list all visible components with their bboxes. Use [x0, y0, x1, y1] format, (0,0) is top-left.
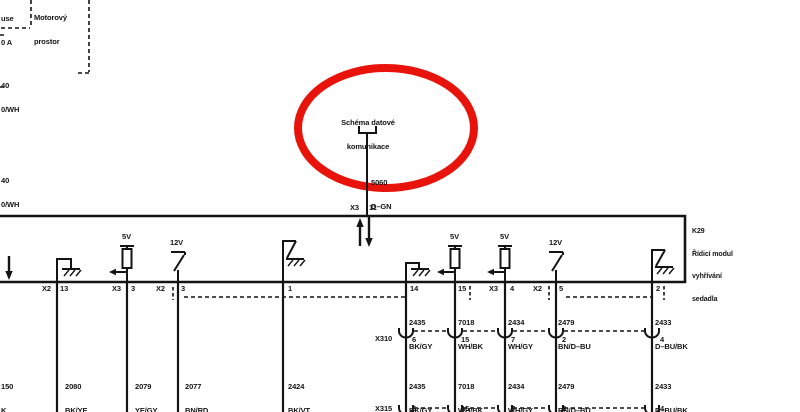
- switch-ground-symbol: [652, 250, 674, 282]
- connector-pin: 4: [660, 405, 664, 412]
- switch-symbol: [549, 252, 563, 282]
- dashed-harness-lines: [173, 286, 664, 300]
- pin-number: 1: [288, 285, 292, 293]
- connector-pin: 2: [562, 405, 566, 412]
- pin-number: 5: [559, 285, 563, 293]
- connector-x310-label: X310: [375, 335, 392, 343]
- pin-connector: X3: [489, 285, 498, 293]
- connector-x315-label: X315: [375, 405, 392, 412]
- pin-number: 4: [510, 285, 514, 293]
- wire-label: 2077 BN/RD: [185, 367, 208, 412]
- supply-5v-label: 5V: [450, 233, 459, 241]
- pin-connector: X2: [42, 285, 51, 293]
- pin-number: 3: [181, 285, 185, 293]
- module-title: K29 Řídicí modul vyhřívání sedadla: [692, 213, 733, 318]
- connector-pin: 6: [412, 405, 416, 412]
- connector-pin: 7: [511, 405, 515, 412]
- pin-number: 13: [60, 285, 68, 293]
- pullup-resistor-symbol: [437, 246, 462, 282]
- ground-symbol: [406, 263, 430, 282]
- supply-12v-label: 12V: [170, 239, 183, 247]
- wire-label-clipped: 40 0/WH: [1, 161, 19, 225]
- pullup-resistor-symbol: [487, 246, 512, 282]
- bus-pin-connector: X3: [350, 204, 359, 212]
- wire-label: 2424 BK/VT: [288, 367, 310, 412]
- connector-pin: 7: [511, 336, 515, 344]
- wire-label: 2079 YE/GY: [135, 367, 157, 412]
- callout-title: Schéma datové komunikace: [330, 103, 406, 167]
- supply-5v-label: 5V: [122, 233, 131, 241]
- pin-number: 15: [458, 285, 466, 293]
- pin-connector: X3: [112, 285, 121, 293]
- wire-label-clipped: 150 K: [1, 367, 13, 412]
- module-box-outline: [0, 215, 686, 283]
- connector-pin: 4: [660, 336, 664, 344]
- pin-number: 2: [656, 285, 660, 293]
- ground-symbol: [57, 259, 81, 282]
- fuse-label: use 0 A: [1, 0, 14, 63]
- connector-pin: 2: [562, 336, 566, 344]
- pin-number: 14: [410, 285, 418, 293]
- pin-connector: X2: [533, 285, 542, 293]
- switch-ground-symbol: [283, 241, 305, 282]
- pin-connector: X2: [156, 285, 165, 293]
- wire-label: 5060 D–GN: [371, 163, 391, 227]
- supply-12v-label: 12V: [549, 239, 562, 247]
- wire-label: 2080 BK/YE: [65, 367, 87, 412]
- supply-5v-label: 5V: [500, 233, 509, 241]
- connector-pin: 15: [461, 336, 469, 344]
- wiring-diagram: use 0 A Motorový prostor 40 0/WH 40 0/WH…: [0, 0, 800, 412]
- switch-symbol: [171, 252, 185, 282]
- pin-number: 3: [131, 285, 135, 293]
- wire-label-clipped: 40 0/WH: [1, 66, 19, 130]
- connector-pin: 6: [412, 336, 416, 344]
- pullup-resistor-symbol: [109, 246, 134, 282]
- down-arrow-icon: [5, 256, 12, 280]
- connector-pin: 15: [461, 405, 469, 412]
- compartment-label: Motorový prostor: [34, 0, 67, 62]
- bus-pin-number: 11: [369, 204, 377, 212]
